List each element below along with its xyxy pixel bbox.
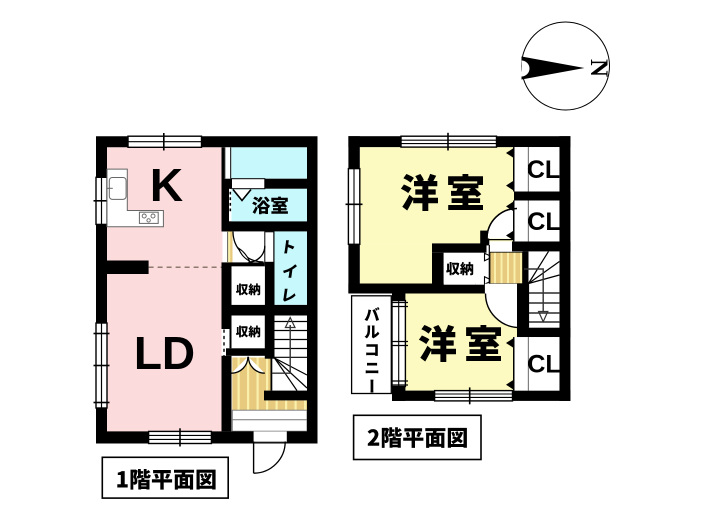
svg-text:K: K [150,159,183,211]
svg-text:CL: CL [527,156,560,184]
svg-text:CL: CL [527,208,560,236]
svg-text:N: N [585,59,612,77]
svg-text:CL: CL [527,351,560,379]
svg-text:LD: LD [134,327,195,379]
